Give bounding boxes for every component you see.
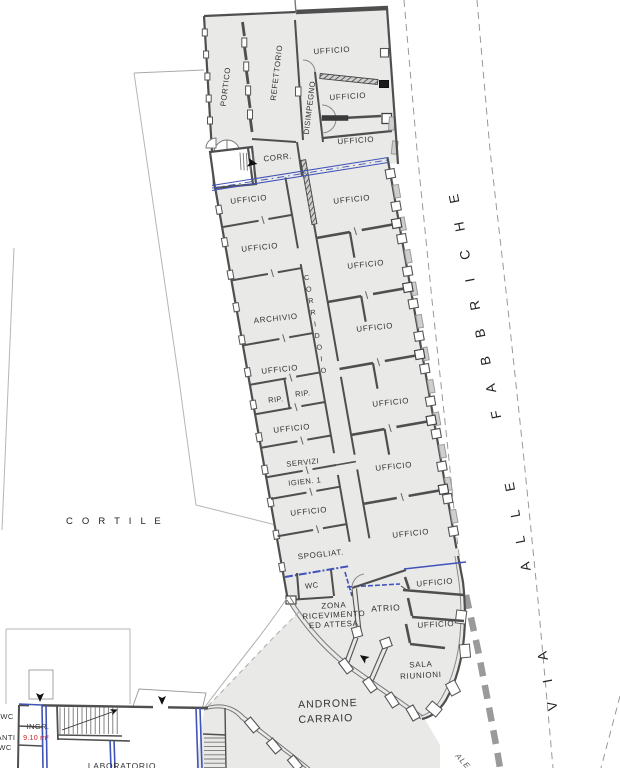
svg-text:C O R T I L E: C O R T I L E (66, 516, 164, 527)
svg-text:ATRIO: ATRIO (371, 602, 401, 614)
svg-text:WC: WC (0, 712, 13, 721)
svg-text:WC: WC (304, 580, 319, 590)
svg-text:INGR.: INGR. (27, 722, 50, 731)
svg-text:RIP.: RIP. (295, 388, 311, 399)
svg-text:SALA: SALA (409, 659, 433, 669)
svg-text:CARRAIO: CARRAIO (298, 712, 353, 726)
svg-text:ANDRONE: ANDRONE (298, 697, 358, 711)
svg-text:ANTI: ANTI (0, 733, 15, 742)
svg-text:9.10 m²: 9.10 m² (23, 733, 49, 742)
svg-text:WC: WC (0, 743, 12, 752)
svg-text:RIP.: RIP. (268, 394, 284, 405)
svg-text:LABORATORIO: LABORATORIO (88, 761, 156, 768)
